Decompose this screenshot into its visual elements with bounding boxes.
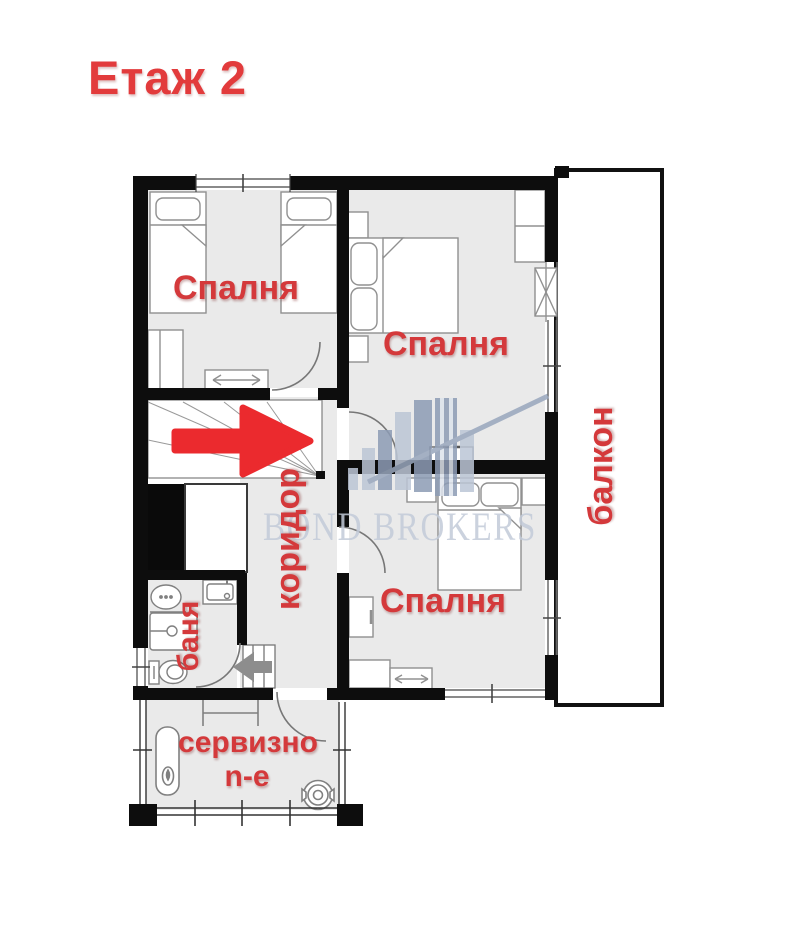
pillow-icon	[351, 243, 377, 285]
label-bedroom-top-right: Спалня	[383, 325, 509, 363]
floor-title: Етаж 2	[88, 50, 247, 105]
label-corridor: коридор	[269, 468, 307, 610]
window-left-bathroom	[132, 648, 150, 686]
wardrobe-block	[185, 484, 247, 572]
closet-icon	[148, 330, 183, 390]
pillow-icon	[156, 198, 200, 220]
label-bedroom-bottom: Спалня	[380, 582, 506, 620]
label-bathroom: баня	[172, 601, 205, 672]
washing-machine-top-icon	[302, 781, 334, 810]
label-bedroom-top-left: Спалня	[173, 269, 299, 307]
desk-icon	[349, 597, 373, 637]
pillow-icon	[287, 198, 331, 220]
pillow-icon	[351, 288, 377, 330]
radiator-icon	[535, 262, 557, 322]
label-service-line2: n-e	[225, 760, 270, 793]
label-service-line1: сервизно	[178, 726, 318, 759]
wardrobe-icon	[515, 190, 545, 262]
cabinet-icon	[349, 660, 390, 688]
label-balcony: балкон	[582, 406, 620, 525]
pillow-icon	[481, 483, 518, 506]
floorplan-page: Етаж 2	[0, 0, 800, 934]
boiler-icon	[156, 727, 179, 795]
floorplan-drawing: BOND BROKERS Спалня Спалня Спалня коридо…	[0, 0, 800, 934]
bench-icon	[390, 668, 432, 690]
window-top	[196, 174, 290, 192]
bench-icon	[205, 370, 268, 390]
storage-dark-block	[147, 484, 185, 573]
sink-icon	[203, 576, 237, 604]
double-bed-icon	[347, 238, 458, 333]
